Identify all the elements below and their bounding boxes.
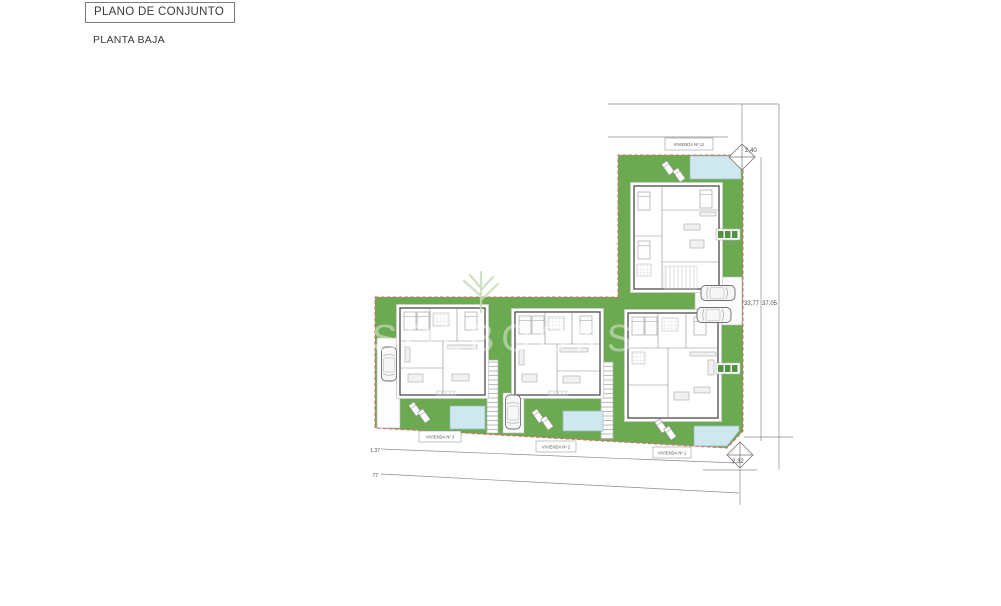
drawing-sheet: PLANO DE CONJUNTO PLANTA BAJA [0,0,1001,606]
dim-top-right: 2,40 [745,148,757,154]
car-icon [701,286,735,301]
pool-house-3 [450,406,485,429]
label-house-2: VIVIENDA Nº 2 [542,445,571,450]
dim-right-outer: 37,05 [762,301,778,307]
dim-bottom-lower: 77 [372,473,378,479]
car-icon [697,308,731,323]
house-top-footprint [631,183,723,293]
dim-bottom-upper: 1,37 [370,448,380,454]
dim-bottom-right: 2,32 [732,459,744,465]
brand-watermark: SOLBOOKS [372,318,639,360]
pool-house-2 [563,411,603,431]
pool-house-1 [694,426,739,446]
ac-units-house-1 [716,363,740,374]
dim-right-inner: 33,77 [744,301,760,307]
label-house-1: VIVIENDA Nº 1 [658,451,687,456]
ac-units-top [716,229,740,240]
label-house-3: VIVIENDA Nº 3 [426,435,455,440]
site-plan-drawing: 2,40 2,32 33,77 37,05 1,37 77 VIVIENDA N… [0,0,1001,606]
car-icon [506,395,521,429]
label-house-top: VIVIENDA Nº 12 [674,142,706,147]
